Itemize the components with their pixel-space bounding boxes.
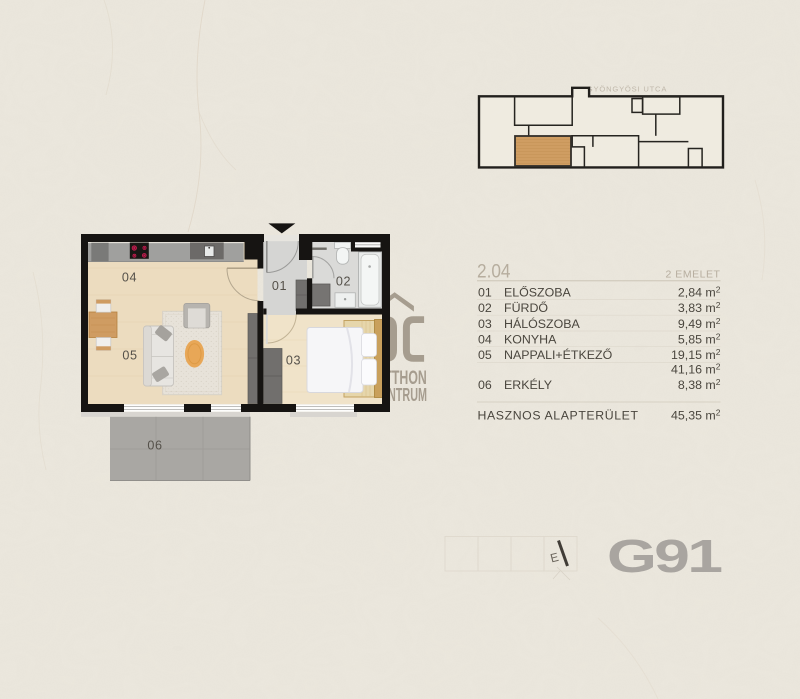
svg-text:03: 03 (478, 317, 492, 331)
svg-text:01: 01 (478, 286, 492, 300)
svg-text:3,83 m2: 3,83 m2 (678, 300, 721, 315)
svg-text:02: 02 (478, 301, 492, 315)
svg-text:HÁLÓSZOBA: HÁLÓSZOBA (504, 316, 580, 331)
svg-text:06: 06 (478, 378, 492, 392)
svg-text:41,16 m2: 41,16 m2 (671, 362, 721, 377)
svg-text:04: 04 (122, 271, 137, 285)
svg-text:GYÖNGYÖSI UTCA: GYÖNGYÖSI UTCA (587, 85, 668, 94)
svg-text:06: 06 (147, 439, 162, 453)
svg-text:01: 01 (272, 279, 287, 293)
svg-text:19,15 m2: 19,15 m2 (671, 347, 721, 362)
svg-text:02: 02 (336, 274, 351, 288)
svg-text:05: 05 (478, 348, 492, 362)
svg-text:45,35 m2: 45,35 m2 (671, 408, 721, 423)
svg-text:03: 03 (286, 354, 301, 368)
svg-text:HASZNOS ALAPTERÜLET: HASZNOS ALAPTERÜLET (478, 409, 639, 423)
svg-text:NAPPALI+ÉTKEZŐ: NAPPALI+ÉTKEZŐ (504, 347, 613, 362)
svg-text:G91: G91 (607, 530, 722, 582)
svg-text:05: 05 (122, 348, 137, 362)
svg-text:KONYHA: KONYHA (504, 333, 557, 347)
svg-text:ELŐSZOBA: ELŐSZOBA (504, 285, 572, 300)
svg-text:04: 04 (478, 333, 492, 347)
svg-text:ERKÉLY: ERKÉLY (504, 377, 552, 392)
svg-text:2,84 m2: 2,84 m2 (678, 285, 721, 300)
svg-text:FÜRDŐ: FÜRDŐ (504, 300, 548, 315)
svg-text:5,85 m2: 5,85 m2 (678, 332, 721, 347)
svg-text:2.04: 2.04 (477, 261, 511, 283)
svg-text:9,49 m2: 9,49 m2 (678, 316, 721, 331)
svg-text:8,38 m2: 8,38 m2 (678, 377, 721, 392)
svg-text:2 EMELET: 2 EMELET (666, 270, 721, 281)
